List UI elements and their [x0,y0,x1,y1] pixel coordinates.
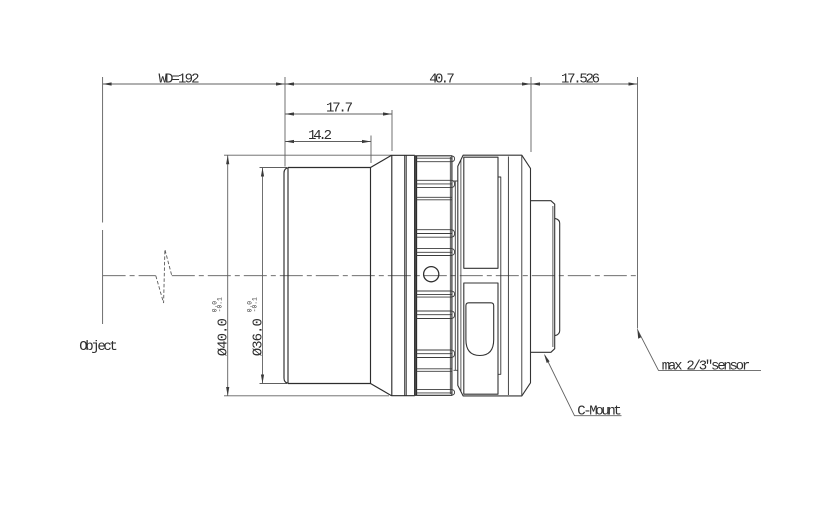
svg-text:17.526: 17.526 [561,72,600,88]
svg-text:WD=192: WD=192 [159,72,200,88]
svg-text:-0.1: -0.1 [216,297,223,312]
svg-text:-0.1: -0.1 [251,297,258,312]
svg-text:17.7: 17.7 [326,101,353,117]
svg-text:Object: Object [79,339,118,355]
svg-text:40.7: 40.7 [429,72,455,88]
svg-text:C-Mount: C-Mount [577,404,622,420]
svg-text:14.2: 14.2 [308,128,332,144]
svg-text:Ø36.0: Ø36.0 [250,318,266,356]
svg-text:Ø40.0: Ø40.0 [215,318,231,356]
svg-text:max 2/3″sensor: max 2/3″sensor [662,359,751,375]
